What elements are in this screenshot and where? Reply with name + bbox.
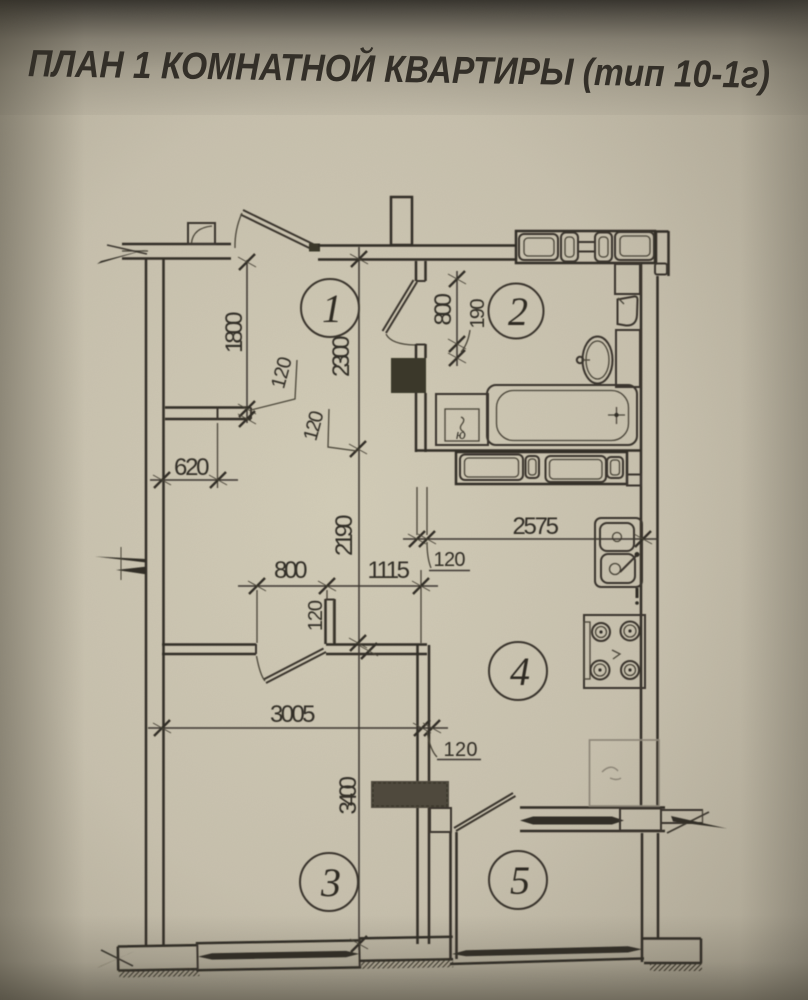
svg-text:2: 2 <box>508 289 528 334</box>
svg-text:1115: 1115 <box>368 557 410 584</box>
svg-text:800: 800 <box>430 293 457 325</box>
svg-text:800: 800 <box>274 557 307 584</box>
svg-text:3400: 3400 <box>335 776 362 814</box>
svg-text:120: 120 <box>305 600 327 631</box>
svg-text:1: 1 <box>322 286 342 331</box>
svg-text:120: 120 <box>434 549 466 571</box>
svg-text:120: 120 <box>444 739 478 761</box>
svg-text:3: 3 <box>320 860 341 905</box>
svg-text:4: 4 <box>510 649 530 694</box>
svg-text:5: 5 <box>510 858 530 903</box>
svg-text:ю: ю <box>456 427 466 442</box>
svg-text:1800: 1800 <box>221 312 248 353</box>
svg-text:2300: 2300 <box>328 336 355 377</box>
svg-text:2190: 2190 <box>331 515 358 556</box>
svg-text:190: 190 <box>467 299 489 329</box>
svg-text:620: 620 <box>174 454 209 481</box>
svg-text:2575: 2575 <box>513 513 559 540</box>
svg-text:3005: 3005 <box>270 701 315 728</box>
